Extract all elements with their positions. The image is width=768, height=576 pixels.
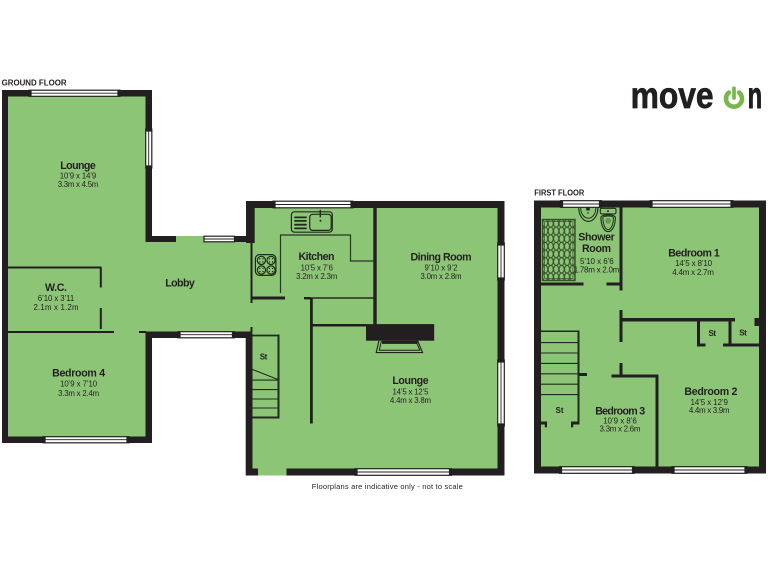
svg-text:4.4m x 3.8m: 4.4m x 3.8m (390, 396, 431, 405)
svg-text:10’9 x 7’10: 10’9 x 7’10 (60, 380, 98, 389)
svg-text:3.3m x 2.6m: 3.3m x 2.6m (600, 424, 641, 433)
svg-text:St: St (739, 328, 747, 337)
svg-text:4.4m x 2.7m: 4.4m x 2.7m (672, 268, 714, 277)
svg-text:2.1m x 1.2m: 2.1m x 1.2m (34, 303, 79, 312)
svg-text:14’5 x 12’5: 14’5 x 12’5 (393, 387, 430, 396)
svg-text:W.C.: W.C. (45, 282, 67, 294)
svg-text:3.0m x 2.8m: 3.0m x 2.8m (421, 272, 462, 281)
svg-text:move: move (631, 75, 714, 116)
svg-text:Bedroom 2: Bedroom 2 (684, 386, 737, 398)
svg-text:Floorplans are indicative only: Floorplans are indicative only - not to … (312, 482, 463, 491)
svg-text:4.4m x 3.9m: 4.4m x 3.9m (689, 406, 730, 415)
svg-text:Shower: Shower (578, 231, 615, 243)
svg-text:St: St (260, 352, 268, 361)
svg-text:3.2m x 2.3m: 3.2m x 2.3m (296, 272, 337, 281)
svg-text:14’5 x 8’10: 14’5 x 8’10 (675, 259, 712, 268)
svg-text:3.3m x 2.4m: 3.3m x 2.4m (58, 389, 99, 398)
svg-text:6’10 x 3’11: 6’10 x 3’11 (38, 294, 75, 303)
svg-text:1.78m x 2.0m: 1.78m x 2.0m (574, 265, 620, 274)
svg-text:n: n (748, 75, 763, 116)
svg-text:Dining Room: Dining Room (411, 251, 472, 263)
svg-text:Lounge: Lounge (60, 160, 96, 172)
svg-text:St: St (556, 406, 564, 415)
svg-text:Lounge: Lounge (392, 375, 428, 387)
svg-text:Bedroom 4: Bedroom 4 (52, 368, 105, 380)
svg-text:FIRST FLOOR: FIRST FLOOR (534, 188, 585, 198)
svg-text:Kitchen: Kitchen (299, 251, 335, 263)
svg-text:St: St (709, 329, 717, 338)
svg-text:Room: Room (582, 243, 611, 255)
svg-text:3.3m x 4.5m: 3.3m x 4.5m (58, 180, 99, 189)
svg-text:GROUND FLOOR: GROUND FLOOR (2, 78, 68, 88)
svg-text:Bedroom 1: Bedroom 1 (668, 247, 720, 259)
svg-text:Lobby: Lobby (165, 277, 195, 289)
